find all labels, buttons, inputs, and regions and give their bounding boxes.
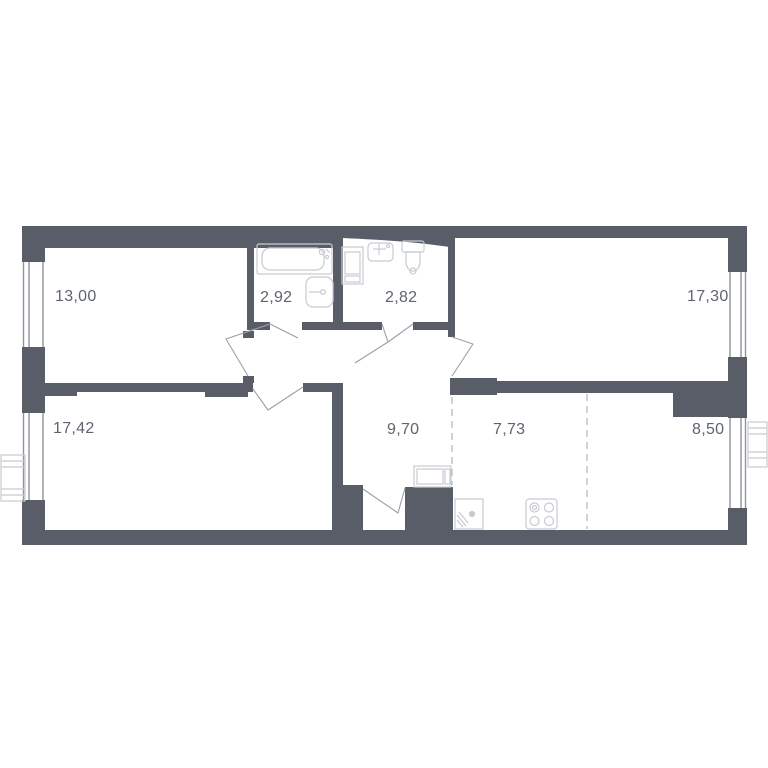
ac-unit-left-icon	[1, 455, 25, 501]
kitchen-sink-icon	[455, 499, 483, 529]
window-bedroom-right-icon	[730, 272, 746, 357]
window-bedroom-left-icon	[24, 413, 44, 500]
door-bedroom-right-swing	[452, 337, 473, 376]
floor-plan-drawing	[0, 0, 768, 768]
walls	[22, 226, 747, 545]
wardrobe-icon	[414, 466, 451, 487]
door-bedroom-left-swing	[253, 387, 303, 410]
window-living-icon	[24, 262, 44, 347]
room-label-bedroom-right: 17,30	[687, 288, 729, 306]
room-label-living: 13,00	[55, 288, 97, 306]
entry-door-swing	[363, 488, 405, 513]
bathtub-icon	[257, 244, 332, 274]
room-label-kitchen: 7,73	[493, 421, 525, 439]
window-dining-icon	[730, 418, 746, 508]
room-label-bathroom: 2,92	[260, 289, 292, 307]
ac-unit-right-icon	[748, 422, 767, 467]
stove-icon	[526, 499, 557, 529]
bath-sink-icon	[306, 277, 333, 307]
floor-plan: 13,00 2,92 2,82 17,30 17,42 9,70 7,73 8,…	[0, 0, 768, 768]
room-label-bedroom-left: 17,42	[53, 420, 95, 438]
wc-sink-icon	[368, 243, 393, 261]
washing-machine-icon	[342, 247, 363, 284]
room-label-dining: 8,50	[692, 421, 724, 439]
room-label-hallway: 9,70	[387, 421, 419, 439]
toilet-icon	[402, 241, 424, 274]
door-living-swing	[226, 324, 298, 376]
room-label-wc: 2,82	[385, 289, 417, 307]
